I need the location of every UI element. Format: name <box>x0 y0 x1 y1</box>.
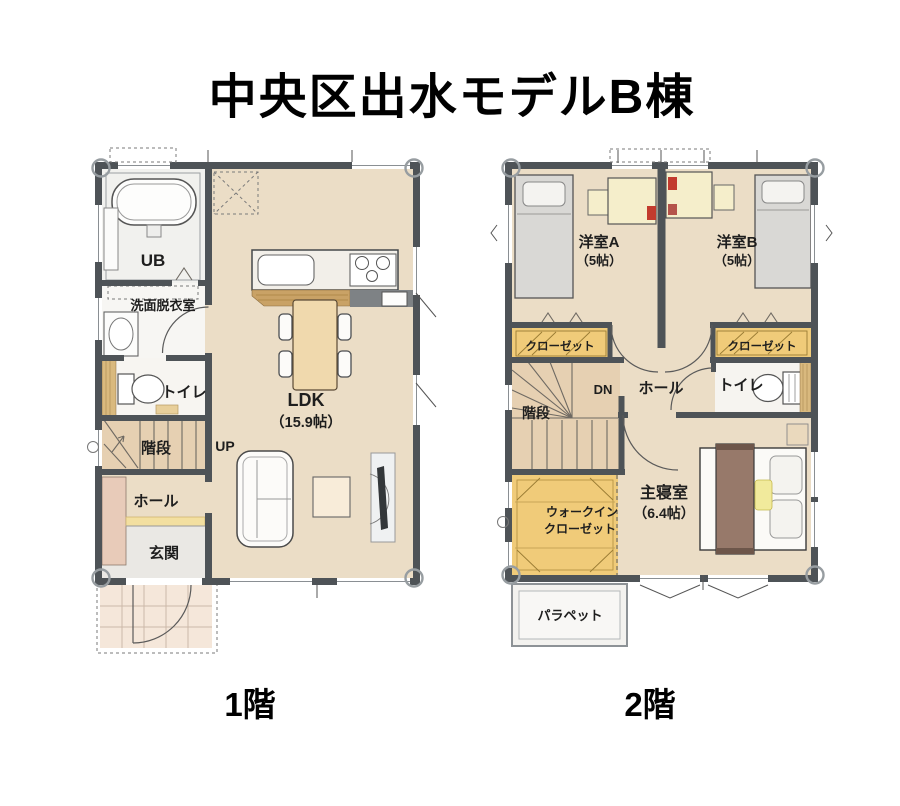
f1-label-genkan: 玄関 <box>149 544 179 562</box>
floorplan-canvas: 中央区出水モデルB棟 <box>0 0 900 806</box>
bed-icon-master <box>700 444 806 554</box>
f2-label-room-a: 洋室A <box>579 233 620 251</box>
floor2-plan: 洋室A （5帖） 洋室B （5帖） クローゼット クローゼット 階段 DN ホー… <box>491 149 832 646</box>
f2-label-closet-a: クローゼット <box>526 339 595 353</box>
f2-label-hall: ホール <box>638 380 683 397</box>
bed-icon-room-b <box>755 175 811 288</box>
floor2-caption: 2階 <box>624 686 675 723</box>
f1-label-ub: UB <box>141 251 166 270</box>
f2-label-toilet: トイレ <box>718 377 763 394</box>
f1-label-ldk: LDK <box>288 390 325 410</box>
floor1-plan: UB 洗面脱衣室 トイレ 階段 UP ホール 玄関 LDK （15.9帖） <box>88 148 437 653</box>
f2-label-room-b-size: （5帖） <box>714 253 760 268</box>
floorplan-page: 中央区出水モデルB棟 <box>0 0 900 806</box>
shoe-cabinet <box>102 477 126 565</box>
f1-label-toilet: トイレ <box>161 384 206 401</box>
f2-label-closet-b: クローゼット <box>728 339 797 353</box>
f2-label-room-b: 洋室B <box>717 233 758 251</box>
f2-label-parapet: パラペット <box>537 608 602 623</box>
genkan-step <box>126 517 205 526</box>
tv-board-icon <box>370 453 395 542</box>
kitchen-counter-icon <box>252 250 413 307</box>
f2-label-room-a-size: （5帖） <box>576 253 622 268</box>
bed-icon-room-a <box>515 175 573 298</box>
f1-label-hall: ホール <box>133 493 178 510</box>
floor1-caption: 1階 <box>224 686 275 723</box>
f2-label-wic-1: ウォークイン <box>546 505 618 519</box>
f2-label-master: 主寝室 <box>640 483 688 502</box>
f2-label-dn: DN <box>594 382 613 397</box>
f1-label-stairs: 階段 <box>141 439 171 457</box>
page-title: 中央区出水モデルB棟 <box>209 70 696 124</box>
f2-label-master-size: （6.4帖） <box>633 505 694 521</box>
side-table-icon <box>787 424 808 445</box>
f2-label-stairs: 階段 <box>522 405 550 421</box>
f2-label-wic-2: クローゼット <box>544 521 616 536</box>
coffee-table-icon <box>313 477 350 517</box>
sofa-icon <box>237 451 293 547</box>
porch-tiles <box>97 583 217 653</box>
f1-label-up: UP <box>215 438 234 454</box>
f1-label-ldk-size: （15.9帖） <box>270 413 342 431</box>
f1-label-senmen: 洗面脱衣室 <box>130 298 195 313</box>
